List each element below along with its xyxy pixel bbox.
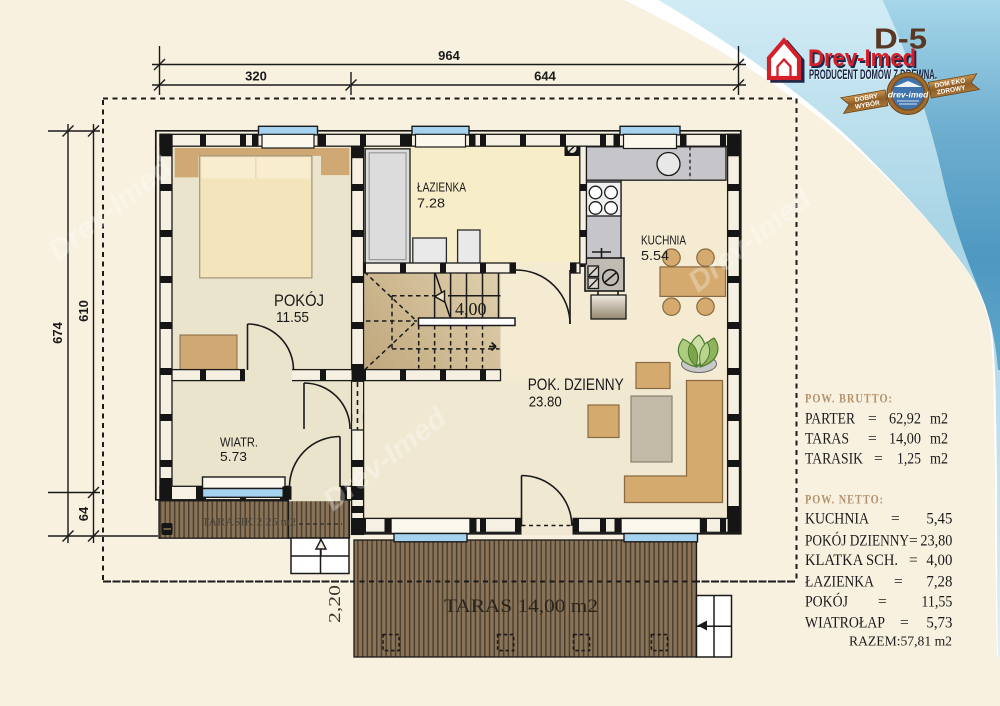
svg-text:drev-imed: drev-imed: [888, 90, 929, 100]
svg-text:5,45: 5,45: [926, 511, 952, 528]
svg-text:WIATROŁAP: WIATROŁAP: [805, 614, 885, 631]
svg-text:62,92: 62,92: [889, 411, 921, 428]
svg-text:KUCHNIA: KUCHNIA: [641, 233, 686, 248]
svg-text:TARAS: TARAS: [805, 431, 849, 448]
svg-text:1,25: 1,25: [897, 451, 921, 468]
svg-text:POKÓJ: POKÓJ: [274, 291, 324, 310]
svg-text:RAZEM:57,81 m2: RAZEM:57,81 m2: [849, 634, 952, 649]
svg-text:TARASIK: TARASIK: [805, 451, 864, 468]
svg-text:964: 964: [438, 48, 460, 63]
svg-text:TARASIK 2,25 m2: TARASIK 2,25 m2: [202, 515, 296, 529]
svg-text:=: =: [909, 532, 918, 549]
svg-text:64: 64: [76, 506, 91, 521]
svg-text:5.73: 5.73: [220, 449, 247, 464]
svg-text:POW. NETTO:: POW. NETTO:: [805, 492, 884, 507]
svg-text:m2: m2: [930, 431, 948, 448]
svg-text:POKÓJ: POKÓJ: [805, 593, 848, 610]
svg-text:=: =: [878, 593, 887, 610]
svg-text:ŁAZIENKA: ŁAZIENKA: [417, 180, 466, 195]
svg-text:KUCHNIA: KUCHNIA: [805, 511, 870, 528]
svg-text:=: =: [874, 451, 883, 468]
svg-text:ŁAZIENKA: ŁAZIENKA: [805, 574, 875, 591]
svg-text:5.54: 5.54: [641, 248, 669, 263]
svg-text:POK. DZIENNY: POK. DZIENNY: [528, 376, 624, 394]
svg-text:4,00: 4,00: [926, 552, 952, 569]
svg-text:23,80: 23,80: [920, 532, 952, 549]
svg-text:644: 644: [534, 69, 556, 84]
svg-text:=: =: [868, 411, 877, 428]
svg-text:11,55: 11,55: [921, 593, 952, 610]
svg-text:POKÓJ DZIENNY: POKÓJ DZIENNY: [805, 532, 909, 549]
svg-text:610: 610: [76, 300, 91, 322]
svg-text:14,00: 14,00: [889, 431, 921, 448]
svg-text:KLATKA SCH.: KLATKA SCH.: [805, 552, 898, 569]
svg-text:23.80: 23.80: [529, 394, 562, 411]
svg-text:PARTER: PARTER: [805, 411, 856, 428]
svg-text:7.28: 7.28: [417, 196, 445, 211]
svg-text:320: 320: [245, 69, 267, 84]
svg-text:m2: m2: [930, 411, 948, 428]
svg-text:=: =: [891, 511, 900, 528]
svg-text:TARAS 14,00 m2: TARAS 14,00 m2: [444, 596, 598, 617]
svg-text:7,28: 7,28: [926, 574, 952, 591]
svg-text:4,00: 4,00: [455, 299, 487, 319]
svg-text:=: =: [900, 614, 909, 631]
svg-text:2,20: 2,20: [325, 585, 344, 623]
svg-text:11.55: 11.55: [276, 309, 309, 326]
svg-text:=: =: [909, 552, 918, 569]
svg-text:=: =: [894, 574, 903, 591]
svg-text:m2: m2: [930, 451, 948, 468]
svg-text:5,73: 5,73: [926, 614, 952, 631]
svg-text:674: 674: [50, 321, 65, 343]
svg-text:POW. BRUTTO:: POW. BRUTTO:: [805, 391, 893, 406]
svg-text:WIATR.: WIATR.: [220, 435, 258, 450]
svg-text:=: =: [868, 431, 877, 448]
